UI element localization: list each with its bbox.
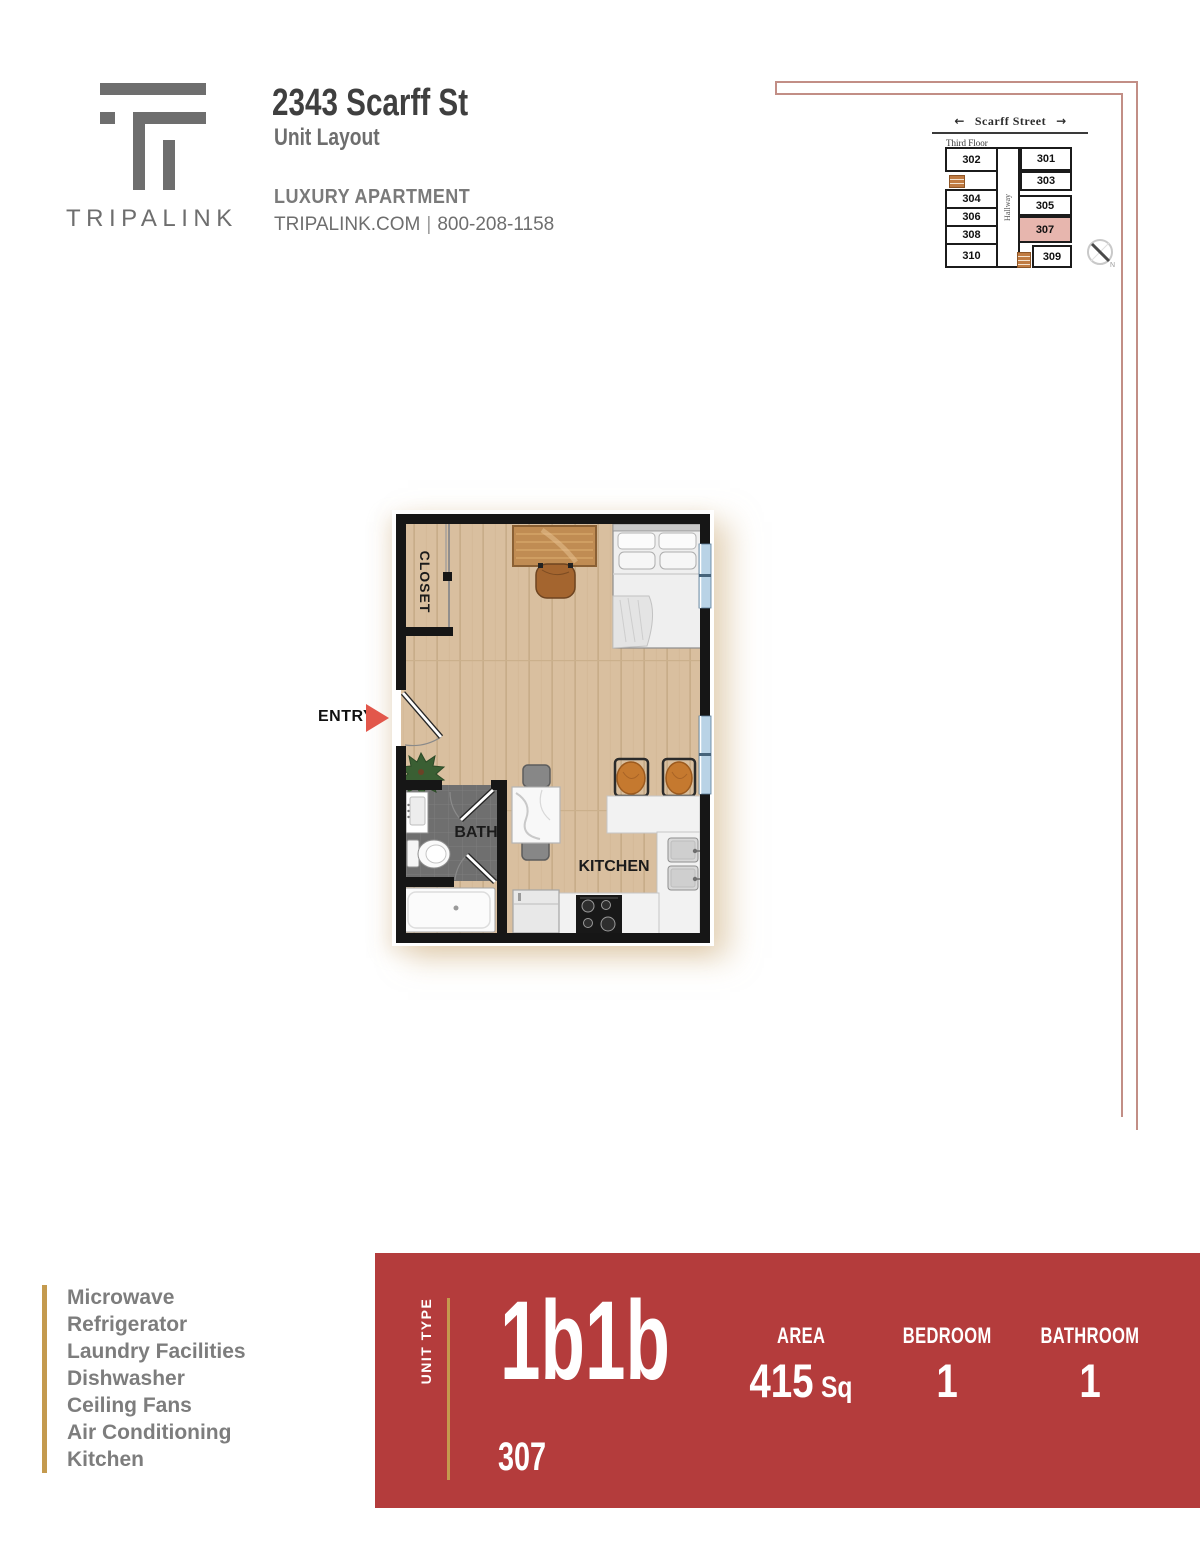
compass-icon: N xyxy=(1086,238,1116,268)
area-label: AREA xyxy=(777,1323,825,1349)
amenity-item: Air Conditioning xyxy=(67,1419,246,1446)
amenities-list: Microwave Refrigerator Laundry Facilitie… xyxy=(67,1284,246,1473)
contact-separator: | xyxy=(420,214,437,235)
amenity-item: Dishwasher xyxy=(67,1365,246,1392)
phone-number: 800-208-1158 xyxy=(437,214,554,235)
stove xyxy=(576,895,622,933)
area-value: 415 xyxy=(749,1354,813,1407)
amenity-item: Ceiling Fans xyxy=(67,1392,246,1419)
logo-bar-square xyxy=(100,112,115,124)
map-hallway: Hallway xyxy=(996,147,1020,268)
building-mini-map: ←Scarff Street→ Third Floor 302 304 306 … xyxy=(928,112,1098,282)
logo-wordmark: TRIPALINK xyxy=(66,205,238,233)
area-stat: AREA 415Sq xyxy=(721,1323,881,1408)
accent-line-stub xyxy=(775,81,779,93)
closet-label: CLOSET xyxy=(417,551,433,614)
street-name: Scarff Street xyxy=(975,114,1046,128)
map-room-309: 309 xyxy=(1032,245,1072,268)
amenities-accent-bar xyxy=(42,1285,47,1473)
hallway-label: Hallway xyxy=(1004,194,1013,221)
bath-label: BATH xyxy=(454,824,497,841)
compass-n-label: N xyxy=(1110,262,1115,268)
area-unit: Sq xyxy=(821,1371,852,1404)
unit-floorplan: CLOSET BATH KITCHEN xyxy=(392,510,714,946)
stairs-icon xyxy=(949,175,965,188)
website: TRIPALINK.COM xyxy=(274,214,420,235)
logo-bar-vert2 xyxy=(163,140,175,190)
window xyxy=(699,544,711,608)
logo-bar-vert1 xyxy=(133,112,145,190)
bedroom-count: 1 xyxy=(936,1354,957,1407)
unit-number: 307 xyxy=(498,1435,565,1480)
contact-line: TRIPALINK.COM|800-208-1158 xyxy=(274,214,554,236)
stairs-icon xyxy=(1017,252,1031,268)
bed xyxy=(613,524,703,648)
refrigerator xyxy=(513,890,559,933)
logo-bar-top xyxy=(100,83,206,95)
map-room-310: 310 xyxy=(945,243,998,268)
bedroom-stat: BEDROOM 1 xyxy=(867,1323,1027,1408)
map-room-306: 306 xyxy=(945,207,998,227)
banner-accent-line xyxy=(447,1298,450,1480)
unit-type-label: UNIT TYPE xyxy=(418,1286,434,1396)
bathtub xyxy=(403,888,495,932)
toilet xyxy=(407,840,450,868)
bathroom-vanity xyxy=(406,792,428,833)
bathroom-count: 1 xyxy=(1079,1354,1100,1407)
dining-table xyxy=(512,787,560,843)
map-room-303: 303 xyxy=(1020,171,1072,191)
kitchen-label: KITCHEN xyxy=(578,858,649,875)
page-subtitle: Unit Layout xyxy=(274,124,380,152)
entry-arrow-icon xyxy=(366,704,389,732)
dining-chair xyxy=(523,765,550,787)
amenity-item: Refrigerator xyxy=(67,1311,246,1338)
bathroom-label: BATHROOM xyxy=(1041,1323,1140,1349)
street-line xyxy=(932,132,1088,134)
map-room-308: 308 xyxy=(945,225,998,245)
bedroom-label: BEDROOM xyxy=(903,1323,992,1349)
street-label: ←Scarff Street→ xyxy=(928,114,1093,129)
map-room-302: 302 xyxy=(945,147,998,172)
amenity-item: Laundry Facilities xyxy=(67,1338,246,1365)
amenity-item: Microwave xyxy=(67,1284,246,1311)
map-room-305: 305 xyxy=(1018,195,1072,216)
window xyxy=(699,716,711,794)
street-arrow-right: → xyxy=(1046,114,1077,128)
desk xyxy=(513,526,596,566)
street-arrow-left: ← xyxy=(944,114,975,128)
property-address: 2343 Scarff St xyxy=(272,82,468,125)
amenity-item: Kitchen xyxy=(67,1446,246,1473)
map-room-304: 304 xyxy=(945,189,998,209)
bathroom-stat: BATHROOM 1 xyxy=(1010,1323,1170,1408)
flyer-page: TRIPALINK 2343 Scarff St Unit Layout LUX… xyxy=(0,0,1200,1552)
tagline: LUXURY APARTMENT xyxy=(274,186,470,209)
map-room-307-highlighted: 307 xyxy=(1018,216,1072,243)
desk-chair xyxy=(536,563,575,598)
map-room-301: 301 xyxy=(1020,147,1072,171)
unit-summary-banner: UNIT TYPE 1b1b AREA 415Sq BEDROOM 1 BATH… xyxy=(375,1253,1200,1508)
